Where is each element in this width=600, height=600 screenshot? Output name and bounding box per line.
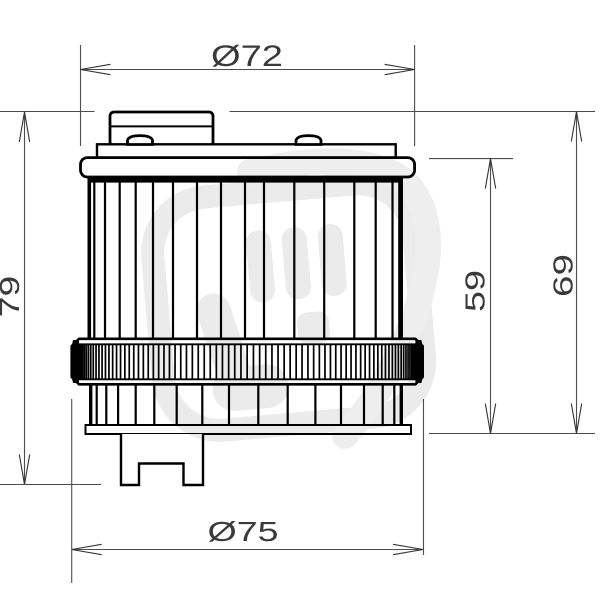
svg-text:Ø75: Ø75 bbox=[208, 516, 279, 547]
svg-text:59: 59 bbox=[460, 270, 491, 312]
svg-text:Ø72: Ø72 bbox=[211, 40, 283, 73]
svg-text:69: 69 bbox=[548, 254, 579, 297]
svg-text:79: 79 bbox=[0, 276, 25, 318]
